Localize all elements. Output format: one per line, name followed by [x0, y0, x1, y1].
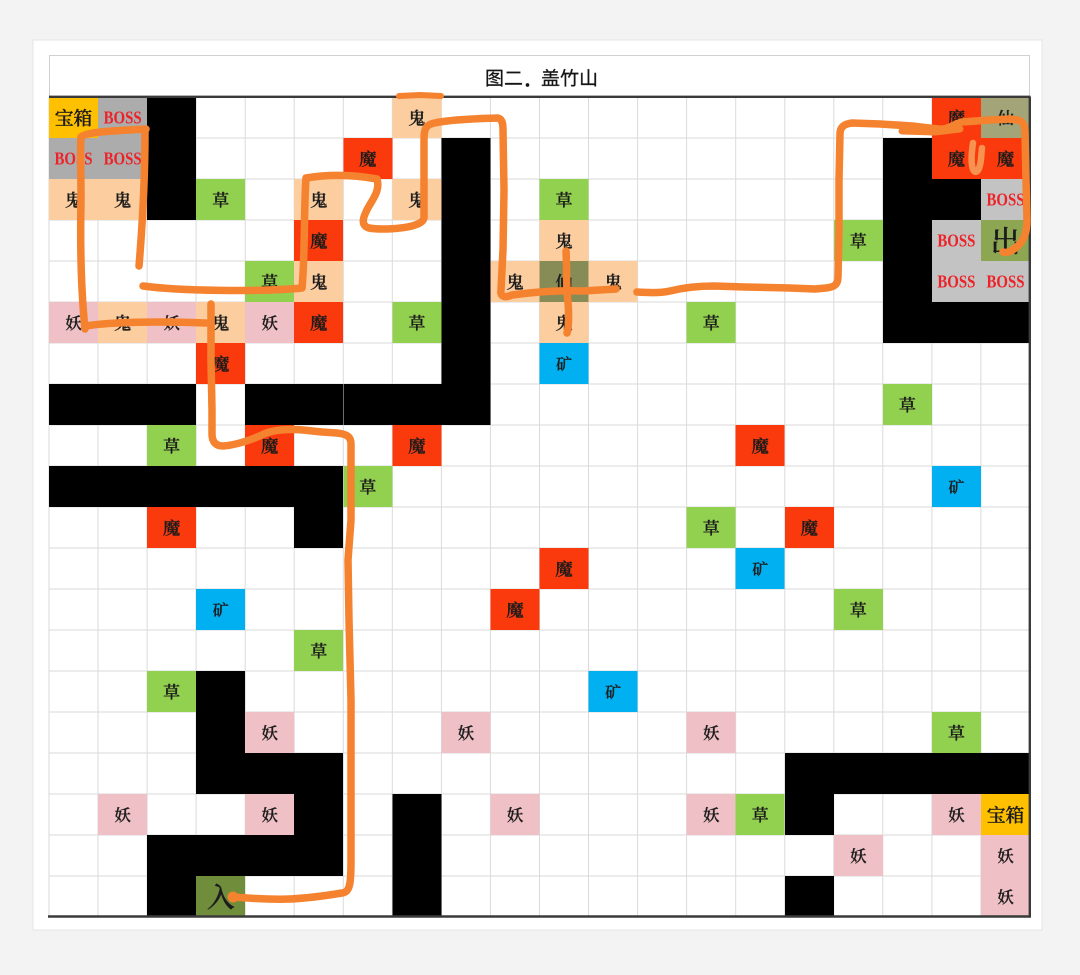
svg-text:BOSS: BOSS: [937, 231, 975, 251]
svg-text:BOSS: BOSS: [55, 149, 93, 169]
svg-text:BOSS: BOSS: [987, 272, 1025, 292]
svg-text:BOSS: BOSS: [987, 190, 1025, 210]
svg-text:BOSS: BOSS: [104, 108, 142, 128]
svg-text:BOSS: BOSS: [937, 272, 975, 292]
svg-text:BOSS: BOSS: [104, 149, 142, 169]
